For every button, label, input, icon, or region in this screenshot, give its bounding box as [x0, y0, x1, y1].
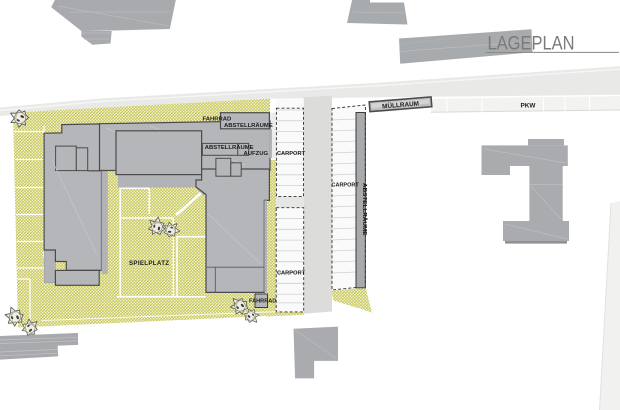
- svg-text:FAHRRAD: FAHRRAD: [203, 116, 232, 122]
- svg-text:CARPORT: CARPORT: [277, 271, 306, 277]
- svg-text:CARPORT: CARPORT: [277, 151, 306, 157]
- svg-text:FAHRRAD: FAHRRAD: [249, 299, 276, 305]
- svg-text:LAGEPLAN: LAGEPLAN: [488, 33, 575, 55]
- svg-text:AUFZUG: AUFZUG: [244, 151, 269, 157]
- svg-text:ABSTELLRÄUME: ABSTELLRÄUME: [205, 144, 254, 151]
- svg-text:CARPORT: CARPORT: [332, 183, 360, 189]
- svg-text:PKW: PKW: [521, 103, 537, 110]
- svg-text:ABSTELLRÄUME: ABSTELLRÄUME: [361, 183, 368, 236]
- svg-text:ABSTELLRÄUME: ABSTELLRÄUME: [224, 122, 273, 129]
- svg-text:SPIELPLATZ: SPIELPLATZ: [129, 260, 169, 267]
